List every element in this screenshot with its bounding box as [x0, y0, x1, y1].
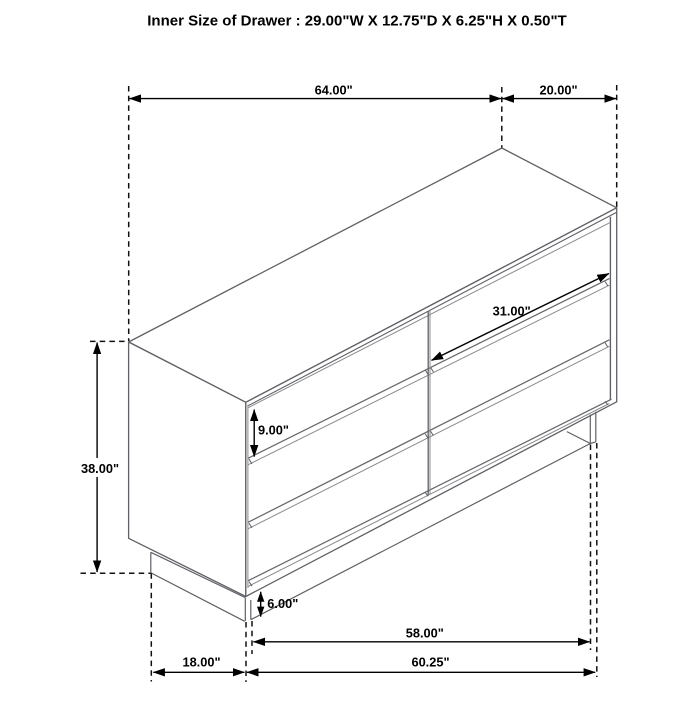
svg-text:6.00": 6.00": [267, 596, 298, 611]
svg-text:60.25": 60.25": [411, 655, 449, 670]
svg-text:31.00": 31.00": [493, 304, 531, 319]
svg-text:20.00": 20.00": [539, 82, 577, 97]
svg-text:Inner Size of Drawer : 29.00"W: Inner Size of Drawer : 29.00"W X 12.75"D…: [147, 13, 566, 30]
svg-text:18.00": 18.00": [182, 655, 220, 670]
svg-text:58.00": 58.00": [406, 625, 444, 640]
svg-text:64.00": 64.00": [315, 82, 353, 97]
svg-text:38.00": 38.00": [81, 461, 119, 476]
svg-text:9.00": 9.00": [258, 423, 289, 438]
